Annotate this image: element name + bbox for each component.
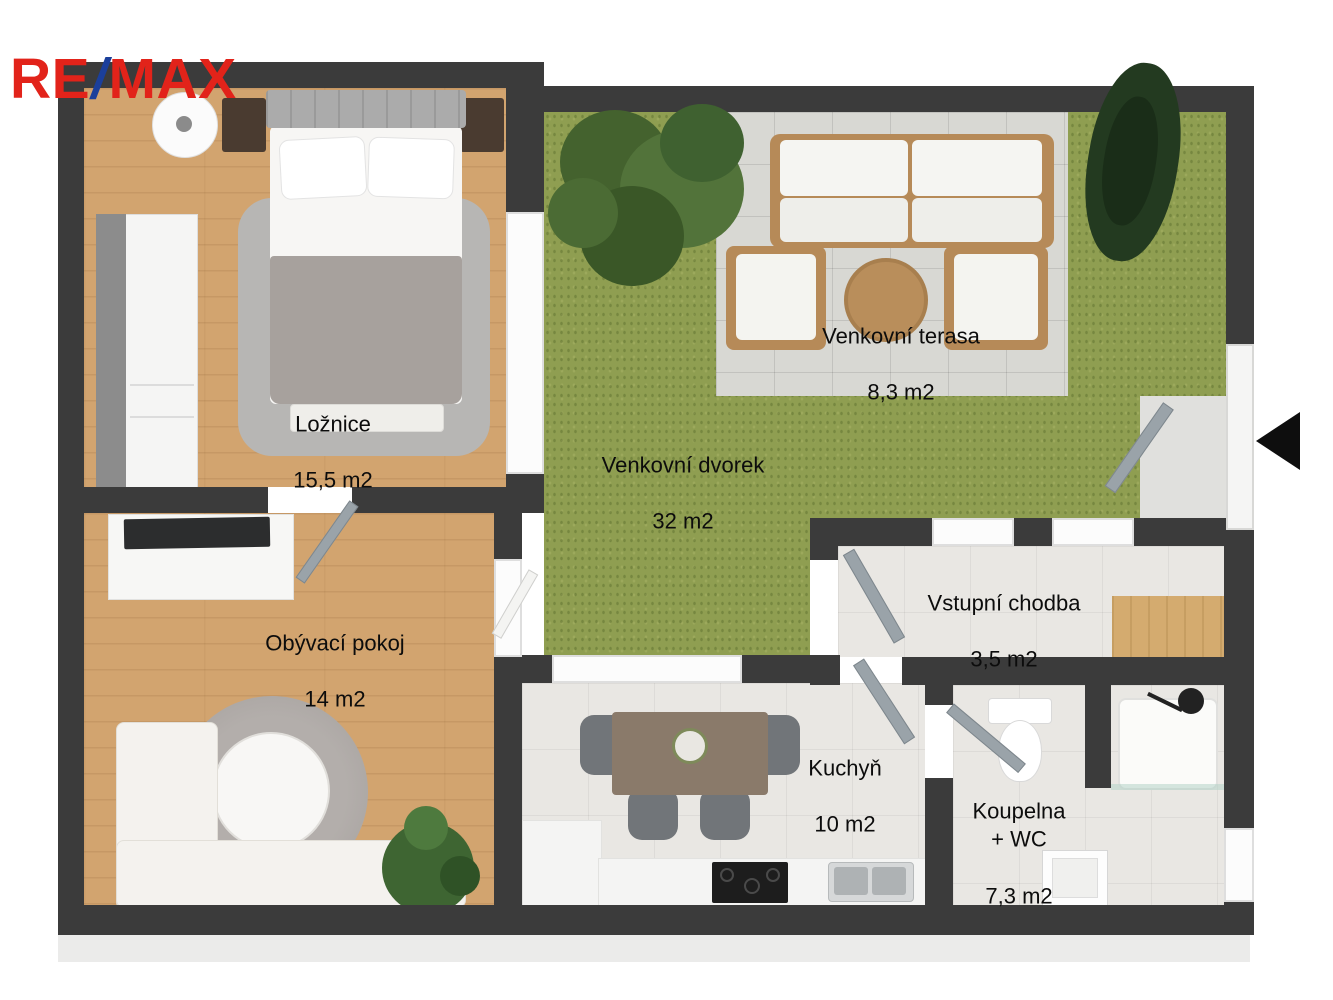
kitchen-counter <box>522 820 602 907</box>
table-flowers <box>672 728 708 764</box>
room-label-obyvaci-pokoj: Obývací pokoj 14 m2 <box>265 602 404 743</box>
pillow <box>278 136 367 200</box>
dining-chair <box>700 788 750 840</box>
room-label-koupelna-wc: Koupelna + WC 7,3 m2 <box>973 770 1066 939</box>
plant-leaf <box>404 806 448 850</box>
fence-gate <box>1226 344 1254 530</box>
room-label-loznice: Ložnice 15,5 m2 <box>293 383 373 524</box>
nightstand-right <box>460 98 504 152</box>
wall-segment <box>494 505 522 559</box>
room-name: Ložnice <box>293 411 373 439</box>
wardrobe-drawer-line <box>130 416 194 418</box>
entrance-path <box>1140 396 1226 518</box>
logo-re: RE <box>10 47 90 111</box>
outdoor-sofa-seat <box>912 198 1042 242</box>
wall-segment <box>58 905 1250 935</box>
outdoor-sofa-cushion <box>912 140 1042 196</box>
window <box>932 518 1014 546</box>
wall-segment <box>58 487 268 513</box>
room-name: Koupelna + WC <box>973 798 1066 854</box>
facade-strip <box>58 935 1250 962</box>
room-name: Obývací pokoj <box>265 630 404 658</box>
sink-basin <box>834 867 868 895</box>
room-area: 14 m2 <box>265 686 404 714</box>
logo-max: MAX <box>109 47 237 111</box>
shower-glass <box>1111 784 1224 790</box>
outdoor-sofa-seat <box>780 198 908 242</box>
wall-segment <box>810 518 838 560</box>
room-label-kuchyn: Kuchyň 10 m2 <box>808 727 881 868</box>
outdoor-armchair-cushion <box>736 254 816 340</box>
shower-tray <box>1118 698 1218 790</box>
room-area: 3,5 m2 <box>928 646 1081 674</box>
pillow <box>367 137 455 200</box>
plant-leaf <box>440 856 480 896</box>
bed-headboard <box>266 90 466 128</box>
wardrobe-drawer-line <box>130 384 194 386</box>
garden-bush <box>548 178 618 248</box>
wall-segment <box>1085 680 1111 788</box>
floorplan-canvas: Ložnice 15,5 m2 Obývací pokoj 14 m2 Venk… <box>0 0 1333 1000</box>
logo-slash-icon: / <box>90 47 108 111</box>
wardrobe-side-panel <box>96 214 126 487</box>
wall-segment <box>494 657 522 935</box>
sink-basin <box>872 867 906 895</box>
wall-segment <box>1014 518 1052 546</box>
room-area: 7,3 m2 <box>973 882 1066 910</box>
room-name: Kuchyň <box>808 755 881 783</box>
coffee-table <box>212 732 330 850</box>
room-area: 32 m2 <box>602 508 765 536</box>
room-name: Venkovní terasa <box>822 323 980 351</box>
hall-wardrobe <box>1112 596 1224 657</box>
room-label-venkovni-dvorek: Venkovní dvorek 32 m2 <box>602 424 765 565</box>
cooktop-burner <box>766 868 780 882</box>
window <box>1052 518 1134 546</box>
window <box>1224 828 1254 902</box>
room-label-vstupni-chodba: Vstupní chodba 3,5 m2 <box>928 562 1081 703</box>
entrance-arrow-icon <box>1256 412 1300 470</box>
remax-logo: RE/MAX <box>10 46 237 112</box>
room-name: Vstupní chodba <box>928 590 1081 618</box>
room-area: 15,5 m2 <box>293 467 373 495</box>
cooktop-burner <box>720 868 734 882</box>
wall-segment <box>522 655 552 683</box>
window <box>506 212 544 474</box>
wall-segment <box>925 778 953 935</box>
dining-chair <box>628 788 678 840</box>
room-label-venkovni-terasa: Venkovní terasa 8,3 m2 <box>822 295 980 436</box>
tv <box>124 517 271 550</box>
floor-lamp-stem <box>176 116 192 132</box>
room-name: Venkovní dvorek <box>602 452 765 480</box>
outdoor-sofa-cushion <box>780 140 908 196</box>
wall-segment <box>1226 86 1254 344</box>
wall-segment <box>506 62 544 212</box>
garden-bush <box>660 104 744 182</box>
cooktop-burner <box>744 878 760 894</box>
room-area: 8,3 m2 <box>822 379 980 407</box>
room-area: 10 m2 <box>808 811 881 839</box>
wall-segment <box>810 655 840 685</box>
window <box>552 655 742 683</box>
